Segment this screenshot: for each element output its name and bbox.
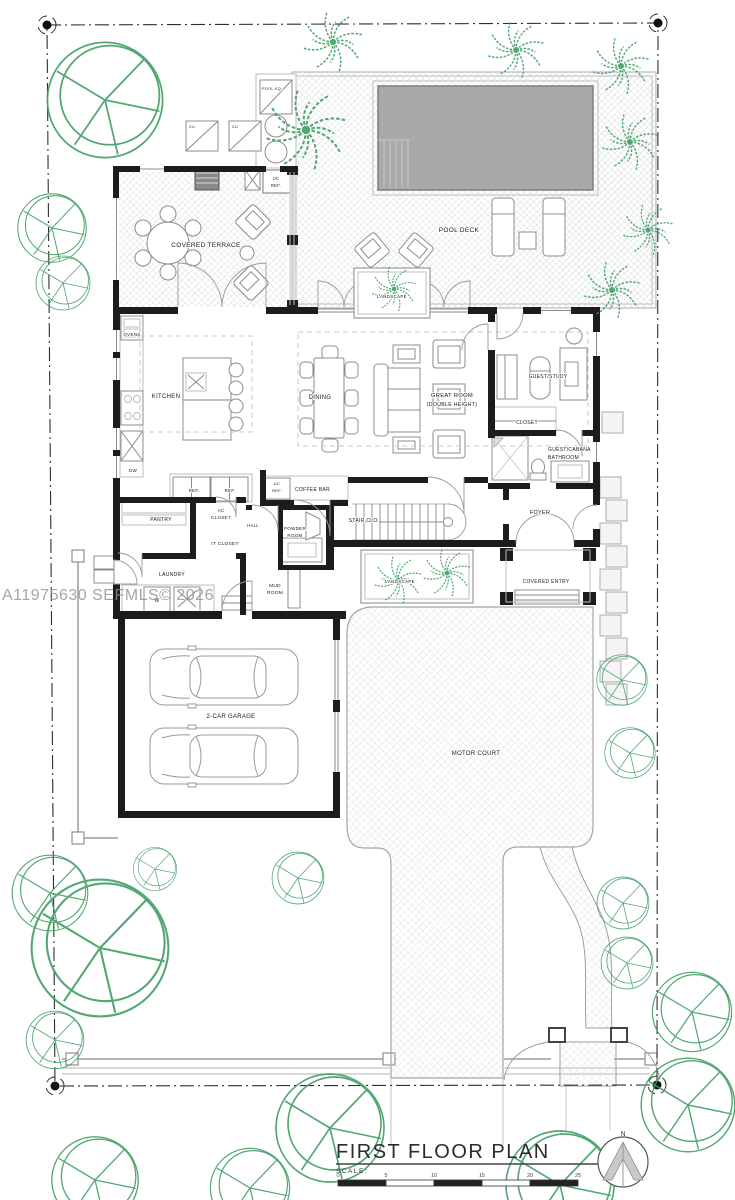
scale-label: SCALE: [336, 1168, 368, 1175]
scale-tick: 20 [527, 1173, 533, 1179]
label-ac-closet-1: AC [218, 508, 225, 513]
swimming-pool [373, 81, 598, 195]
label-ovens: OVENS [123, 332, 140, 337]
plan-title: FIRST FLOOR PLAN [336, 1141, 550, 1163]
round-tree [597, 877, 649, 929]
paver-path-east [600, 412, 627, 705]
mud-room-bench [288, 568, 300, 608]
round-tree [133, 847, 176, 890]
driveway-extension [391, 1078, 503, 1145]
great-room-furniture [374, 340, 465, 458]
round-tree [47, 42, 162, 157]
gate-posts [549, 1028, 627, 1042]
label-ref-1: REF. [189, 488, 200, 493]
label-garage: 2-CAR GARAGE [207, 714, 256, 720]
scale-tick: 25 [575, 1173, 581, 1179]
label-it-closet: IT CLOSET [211, 541, 238, 547]
floor-plan-page: POOL EQ. CU CU UC REF. COVERED TERRACE P… [0, 0, 735, 1200]
round-tree [652, 972, 731, 1051]
label-hall: HALL [247, 523, 259, 528]
round-tree [276, 1074, 384, 1182]
label-uc-ref-bar-1: UC [274, 481, 280, 486]
condenser-units [186, 121, 261, 151]
label-foyer: FOYER [530, 510, 550, 516]
label-uc-ref-bar-2: REF. [272, 488, 282, 493]
label-landscape-upper: LANDSCAPE [377, 294, 407, 299]
label-great-room-2: (DOUBLE HEIGHT) [427, 402, 477, 408]
watermark: A11975630 SEFMLS© 2026 [2, 587, 214, 604]
guest-study-furniture [497, 328, 587, 400]
label-kitchen: KITCHEN [152, 394, 180, 400]
label-stair-clo: STAIR CLO. [349, 518, 379, 524]
label-closet: CLOSET [516, 420, 538, 426]
floor-plan-canvas: POOL EQ. CU CU UC REF. COVERED TERRACE P… [0, 0, 735, 1200]
round-tree [18, 194, 86, 262]
label-coffee-bar: COFFEE BAR [295, 487, 330, 493]
label-covered-entry: COVERED ENTRY [523, 579, 570, 585]
label-dw: DW [129, 468, 138, 473]
side-steps-west [94, 556, 114, 583]
palm-tree [302, 11, 363, 72]
label-covered-terrace: COVERED TERRACE [171, 242, 241, 249]
label-great-room-1: GREAT ROOM [431, 393, 473, 399]
scale-tick: 0 [336, 1173, 339, 1179]
label-uc-ref-terrace-1: UC [273, 176, 280, 181]
label-laundry: LAUNDRY [159, 572, 185, 578]
label-cu-1: CU [189, 125, 195, 129]
label-guest-cabana-1: GUEST/CABANA [548, 447, 591, 453]
label-landscape-lower: LANDSCAPE [385, 579, 415, 584]
north-arrow: N [598, 1131, 648, 1187]
kitchen-fixtures [120, 313, 243, 477]
round-tree [210, 1148, 289, 1200]
label-motor-court: MOTOR COURT [452, 751, 500, 757]
round-tree [52, 1137, 138, 1200]
label-mud-1: MUD [269, 583, 281, 589]
label-cu-2: CU [232, 125, 238, 129]
label-ref-2: REF. [225, 488, 236, 493]
scale-tick: 10 [431, 1173, 437, 1179]
label-guest-study: GUEST/STUDY [529, 374, 568, 380]
label-uc-ref-terrace-2: REF. [271, 183, 281, 188]
label-powder-2: ROOM [287, 533, 302, 538]
label-guest-cabana-2: BATHROOM [548, 455, 579, 461]
gate-stoop [560, 1042, 616, 1086]
label-pool-deck: POOL DECK [439, 227, 480, 234]
north-label: N [620, 1131, 625, 1138]
label-mud-2: ROOM [267, 590, 283, 596]
scale-tick: 5 [384, 1173, 387, 1179]
round-tree [36, 256, 90, 310]
round-tree [605, 728, 655, 778]
label-ac-closet-2: CLOSET [211, 515, 231, 520]
label-dining: DINING [309, 395, 332, 401]
label-powder-1: POWDER [284, 526, 307, 531]
round-tree [272, 852, 324, 904]
label-pantry: PANTRY [150, 517, 172, 523]
round-tree [12, 855, 88, 931]
motor-court-paving [347, 607, 593, 1078]
scale-tick: 15 [479, 1173, 485, 1179]
palm-tree [487, 21, 545, 79]
round-tree [641, 1058, 735, 1152]
label-pool-eq: POOL EQ. [262, 87, 282, 91]
entry-walkway [540, 847, 612, 1028]
